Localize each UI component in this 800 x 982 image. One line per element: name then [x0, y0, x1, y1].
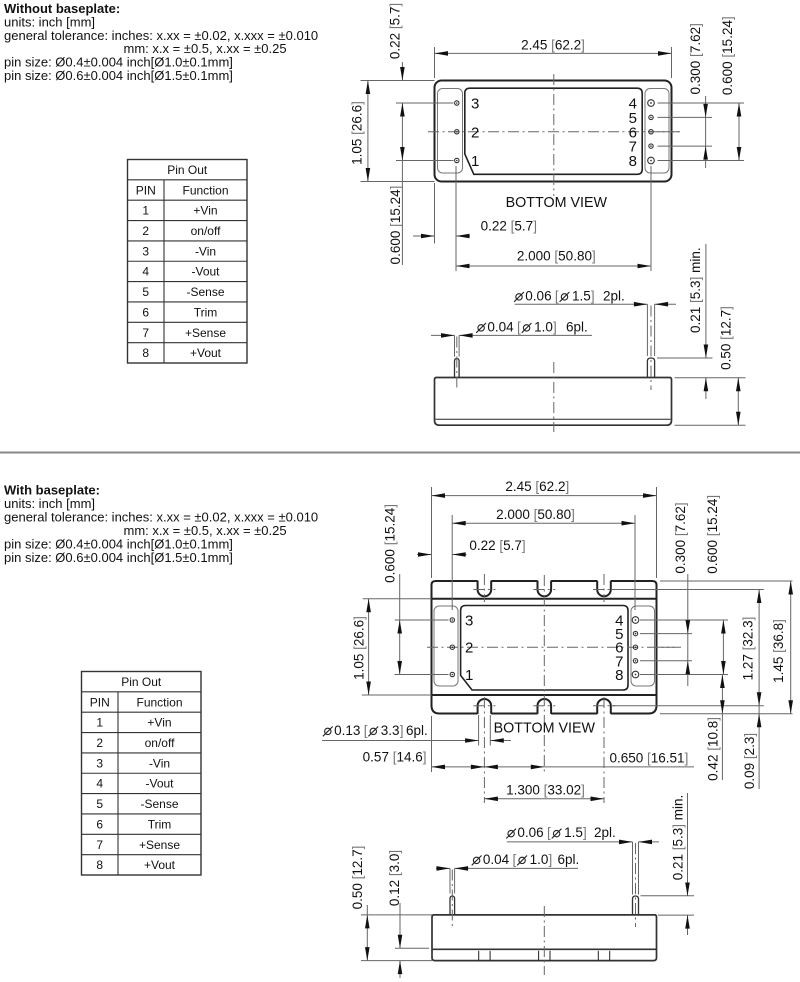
svg-text:]: ]	[553, 320, 557, 335]
svg-text:0.06: 0.06	[517, 825, 543, 840]
svg-text:1: 1	[96, 716, 103, 730]
svg-text:-Vin: -Vin	[195, 244, 216, 258]
svg-text:2.45 [62.2]: 2.45 [62.2]	[505, 479, 569, 494]
svg-text:8: 8	[615, 667, 623, 684]
svg-text:3.3: 3.3	[381, 723, 400, 738]
svg-text:BOTTOM VIEW: BOTTOM VIEW	[494, 721, 596, 737]
svg-text:2.45 [62.2]: 2.45 [62.2]	[521, 38, 585, 53]
svg-text:1.27 [32.3]: 1.27 [32.3]	[741, 617, 756, 681]
svg-text:PIN: PIN	[136, 183, 156, 197]
svg-text:+Sense: +Sense	[139, 838, 180, 852]
svg-text:]: ]	[549, 852, 553, 867]
svg-text:6pl.: 6pl.	[406, 723, 428, 738]
svg-text:3: 3	[96, 756, 103, 770]
svg-text:0.50 [12.7]: 0.50 [12.7]	[718, 306, 733, 370]
svg-text:+Vin: +Vin	[147, 716, 171, 730]
svg-text:Pin Out: Pin Out	[121, 675, 162, 689]
svg-text:2: 2	[142, 224, 149, 238]
svg-text:5: 5	[96, 797, 103, 811]
svg-text:5: 5	[142, 285, 149, 299]
svg-text:7: 7	[142, 326, 149, 340]
svg-text:1.0: 1.0	[534, 320, 553, 335]
svg-text:1.45 [36.8]: 1.45 [36.8]	[771, 619, 786, 683]
svg-text:Function: Function	[182, 183, 228, 197]
svg-text:0.600 [15.24]: 0.600 [15.24]	[705, 495, 720, 574]
svg-text:1: 1	[471, 153, 479, 170]
svg-text:0.300 [7.62]: 0.300 [7.62]	[688, 23, 703, 94]
svg-text:+Vout: +Vout	[190, 346, 222, 360]
svg-text:6: 6	[142, 305, 149, 319]
svg-text:[: [	[364, 723, 368, 738]
svg-text:0.57 [14.6]: 0.57 [14.6]	[363, 750, 427, 765]
svg-text:0.13: 0.13	[334, 723, 360, 738]
svg-text:8: 8	[142, 346, 149, 360]
svg-text:0.50 [12.7]: 0.50 [12.7]	[350, 846, 365, 910]
svg-text:0.21 [5.3] min.: 0.21 [5.3] min.	[671, 795, 686, 881]
svg-text:7: 7	[96, 838, 103, 852]
svg-text:]: ]	[591, 289, 595, 304]
svg-text:Trim: Trim	[194, 305, 218, 319]
svg-text:0.22 [5.7]: 0.22 [5.7]	[469, 538, 525, 553]
svg-text:Trim: Trim	[148, 817, 172, 831]
svg-text:0.600 [15.24]: 0.600 [15.24]	[720, 16, 735, 95]
svg-text:[: [	[513, 852, 517, 867]
svg-text:0.22 [5.7]: 0.22 [5.7]	[481, 218, 537, 233]
svg-text:[: [	[547, 825, 551, 840]
svg-text:0.04: 0.04	[483, 852, 510, 867]
svg-text:1: 1	[142, 204, 149, 218]
svg-text:0.12 [3.0]: 0.12 [3.0]	[387, 850, 402, 906]
svg-text:1.05 [26.6]: 1.05 [26.6]	[350, 101, 365, 165]
svg-text:0.42 [10.8]: 0.42 [10.8]	[706, 717, 721, 781]
svg-text:2: 2	[471, 124, 479, 141]
svg-text:2: 2	[465, 640, 473, 657]
svg-text:+Sense: +Sense	[185, 326, 226, 340]
svg-text:-Vin: -Vin	[149, 756, 170, 770]
svg-text:0.600 [15.24]: 0.600 [15.24]	[388, 186, 403, 265]
svg-text:0.300 [7.62]: 0.300 [7.62]	[673, 502, 688, 573]
svg-text:3: 3	[471, 96, 479, 113]
svg-text:6pl.: 6pl.	[558, 852, 580, 867]
svg-text:2.000 [50.80]: 2.000 [50.80]	[517, 249, 596, 264]
svg-text:[: [	[555, 289, 559, 304]
svg-text:0.06: 0.06	[525, 289, 551, 304]
svg-text:pin size: Ø0.6±0.004 inch[Ø1.5: pin size: Ø0.6±0.004 inch[Ø1.5±0.1mm]	[4, 550, 233, 565]
svg-text:PIN: PIN	[90, 695, 110, 709]
svg-text:1: 1	[465, 667, 473, 684]
svg-text:on/off: on/off	[145, 736, 175, 750]
svg-text:1.300 [33.02]: 1.300 [33.02]	[506, 783, 585, 798]
svg-text:2pl.: 2pl.	[603, 289, 625, 304]
svg-text:pin size: Ø0.6±0.004 inch[Ø1.5: pin size: Ø0.6±0.004 inch[Ø1.5±0.1mm]	[4, 68, 233, 83]
svg-text:1.0: 1.0	[530, 852, 549, 867]
svg-text:2pl.: 2pl.	[594, 825, 616, 840]
svg-text:3: 3	[142, 244, 149, 258]
svg-text:4: 4	[142, 265, 149, 279]
svg-text:1.05 [26.6]: 1.05 [26.6]	[351, 616, 366, 680]
svg-text:0.22 [5.7]: 0.22 [5.7]	[388, 3, 403, 59]
svg-text:6: 6	[96, 817, 103, 831]
svg-text:-Vout: -Vout	[145, 777, 174, 791]
svg-text:2: 2	[96, 736, 103, 750]
svg-text:-Vout: -Vout	[191, 265, 220, 279]
svg-text:-Sense: -Sense	[140, 797, 178, 811]
svg-text:[: [	[517, 320, 521, 335]
svg-text:on/off: on/off	[191, 224, 221, 238]
svg-text:2.000 [50.80]: 2.000 [50.80]	[496, 507, 575, 522]
svg-text:+Vin: +Vin	[193, 204, 217, 218]
svg-text:Function: Function	[136, 695, 182, 709]
svg-text:]: ]	[583, 825, 587, 840]
svg-text:8: 8	[629, 153, 637, 170]
svg-text:0.04: 0.04	[487, 320, 514, 335]
svg-text:]: ]	[400, 723, 404, 738]
svg-text:6pl.: 6pl.	[566, 320, 588, 335]
svg-text:1.5: 1.5	[572, 289, 591, 304]
svg-text:+Vout: +Vout	[144, 858, 176, 872]
svg-text:BOTTOM VIEW: BOTTOM VIEW	[506, 195, 608, 211]
svg-text:8: 8	[96, 858, 103, 872]
svg-text:0.09 [2.3]: 0.09 [2.3]	[742, 733, 757, 789]
svg-text:-Sense: -Sense	[186, 285, 224, 299]
svg-text:Pin Out: Pin Out	[167, 163, 208, 177]
svg-text:0.21 [5.3] min.: 0.21 [5.3] min.	[688, 247, 703, 333]
svg-text:0.600 [15.24]: 0.600 [15.24]	[383, 504, 398, 583]
svg-text:3: 3	[465, 613, 473, 630]
svg-text:4: 4	[96, 777, 103, 791]
svg-text:1.5: 1.5	[564, 825, 583, 840]
svg-text:0.650 [16.51]: 0.650 [16.51]	[609, 751, 688, 766]
